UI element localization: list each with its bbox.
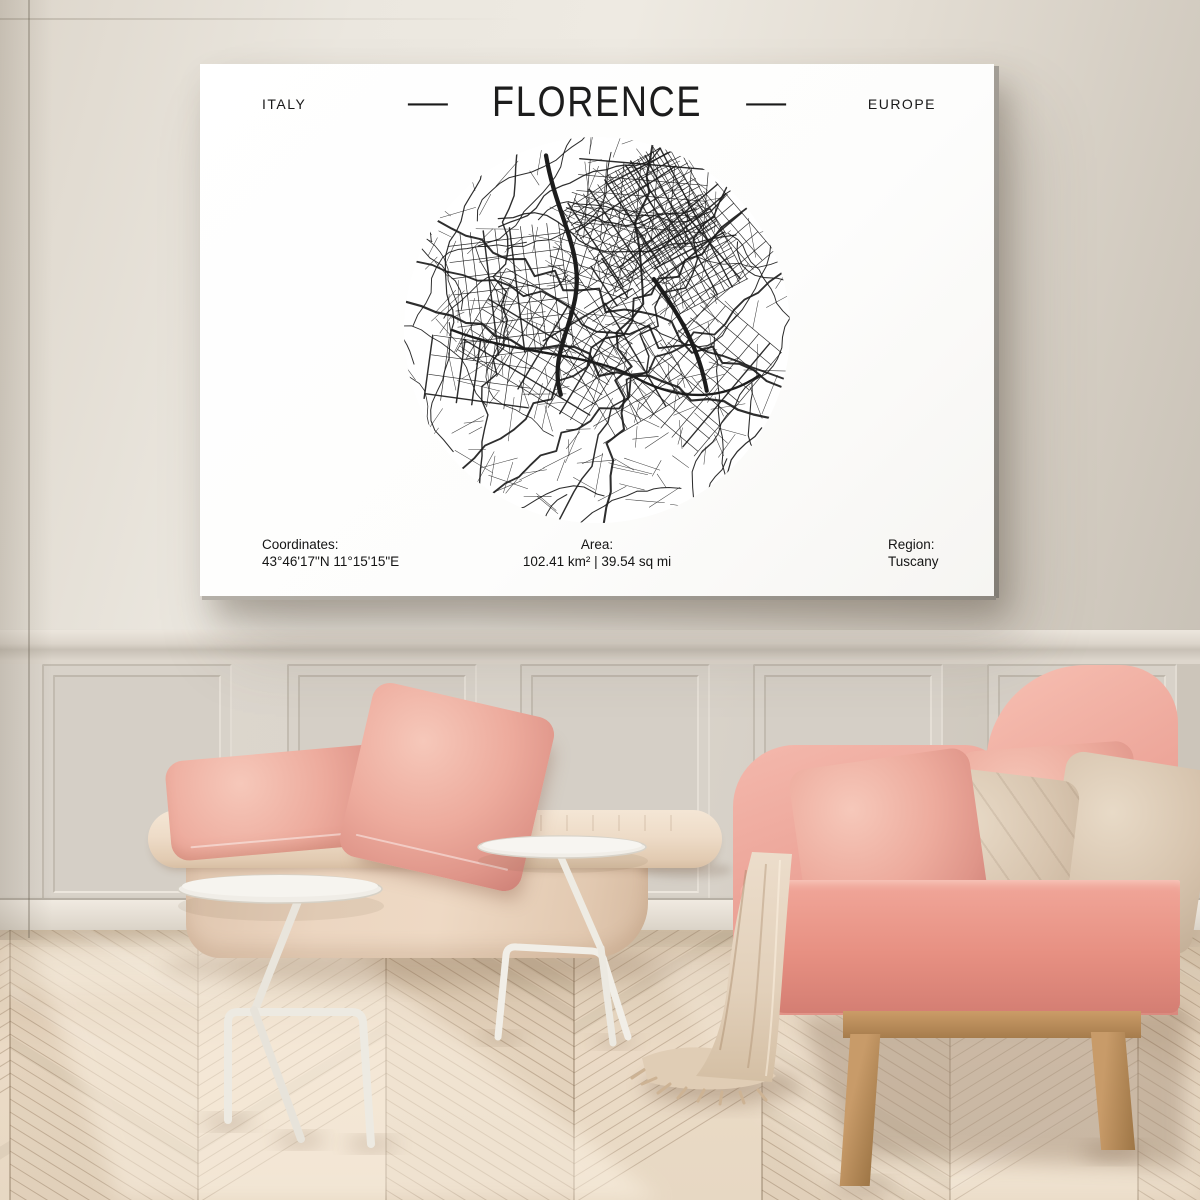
title-dash-right: —	[746, 85, 786, 121]
chair-rail-molding	[0, 630, 1200, 664]
poster-header: ITALY — FLORENCE — EUROPE	[200, 64, 994, 134]
ceiling-corner-line	[0, 18, 520, 20]
poster-canvas-edge	[994, 66, 999, 598]
area-value: 102.41 km² | 39.54 sq mi	[200, 553, 994, 570]
area-label: Area:	[200, 536, 994, 553]
region-label: Region:	[888, 536, 939, 553]
poster-title: FLORENCE	[492, 78, 702, 127]
wall-corner-shadow	[0, 0, 70, 940]
side-table-left	[150, 860, 410, 1160]
region-value: Tuscany	[888, 553, 939, 570]
poster-canvas-edge-bottom	[202, 596, 996, 600]
title-dash-left: —	[408, 85, 448, 121]
throw-blanket	[620, 840, 890, 1120]
florence-street-map	[401, 134, 793, 526]
wall-corner-edge	[28, 0, 30, 938]
poster-canvas-florence: ITALY — FLORENCE — EUROPE Coordinates: 4…	[200, 64, 994, 596]
living-room-scene: ITALY — FLORENCE — EUROPE Coordinates: 4…	[0, 0, 1200, 1200]
